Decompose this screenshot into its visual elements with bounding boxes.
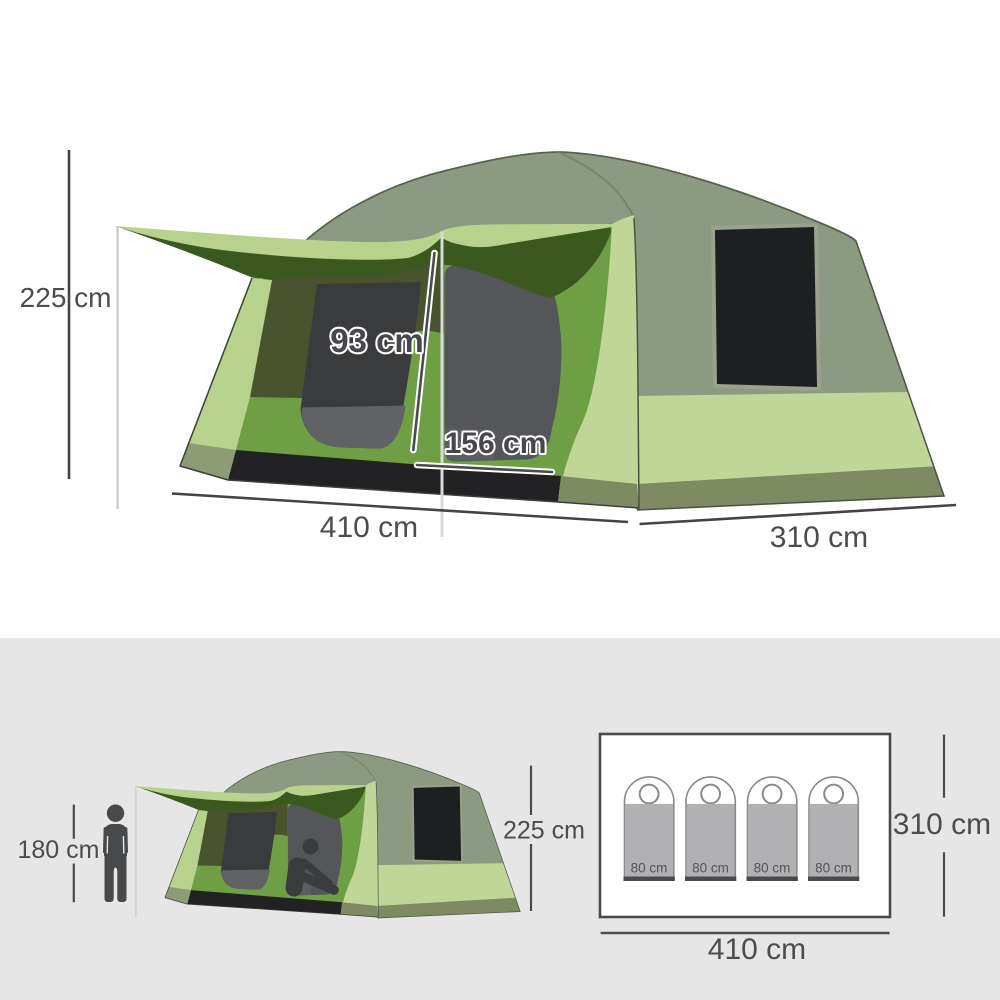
svg-text:410 cm: 410 cm bbox=[320, 511, 418, 544]
svg-text:310 cm: 310 cm bbox=[770, 521, 868, 554]
svg-text:93 cm: 93 cm bbox=[330, 322, 424, 359]
svg-text:310 cm: 310 cm bbox=[893, 808, 991, 841]
svg-text:180 cm: 180 cm bbox=[18, 836, 100, 864]
svg-text:225 cm: 225 cm bbox=[20, 282, 112, 313]
svg-text:410 cm: 410 cm bbox=[708, 933, 806, 966]
svg-text:156 cm: 156 cm bbox=[445, 427, 547, 460]
svg-text:225 cm: 225 cm bbox=[503, 817, 585, 845]
svg-text:80 cm: 80 cm bbox=[631, 861, 668, 876]
